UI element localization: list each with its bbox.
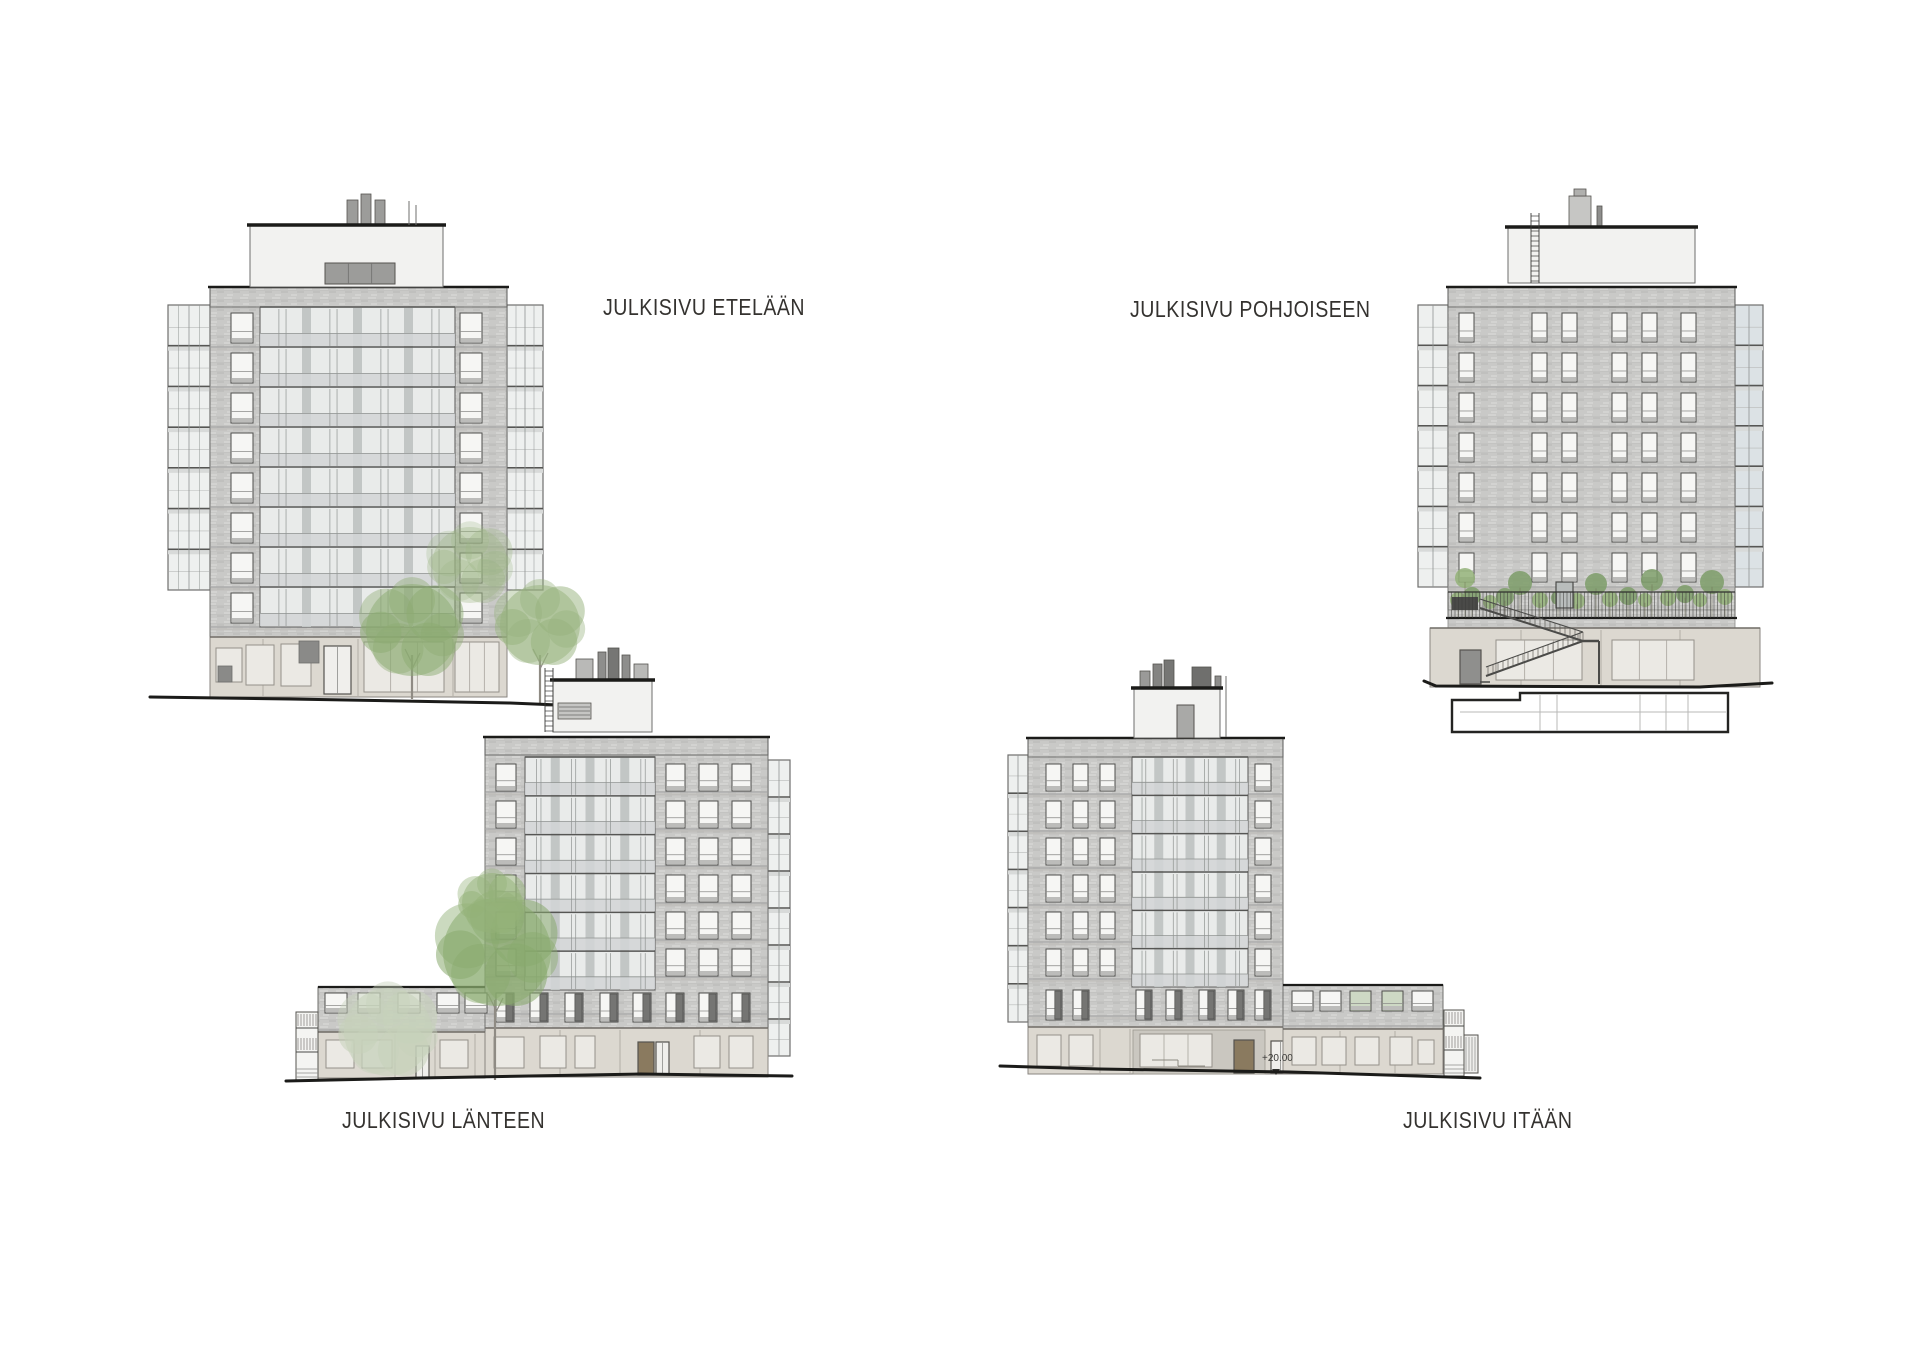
elevation-label-east: JULKISIVU ITÄÄN	[1403, 1107, 1573, 1134]
elevation-label-north: JULKISIVU POHJOISEEN	[1130, 296, 1371, 323]
elevation-south	[150, 194, 607, 707]
elevation-label-south: JULKISIVU ETELÄÄN	[603, 294, 805, 321]
elevation-west	[286, 648, 792, 1081]
elevation-label-west: JULKISIVU LÄNTEEN	[342, 1107, 545, 1134]
elevations-canvas: +20.00	[0, 0, 1920, 1357]
elevation-north	[1418, 189, 1772, 732]
facade-drawing-sheet: +20.00 JULKISIVU ETELÄÄN JULKISIVU POHJO…	[0, 0, 1920, 1357]
svg-text:+20.00: +20.00	[1262, 1053, 1293, 1064]
elevation-east: +20.00	[1000, 660, 1480, 1078]
